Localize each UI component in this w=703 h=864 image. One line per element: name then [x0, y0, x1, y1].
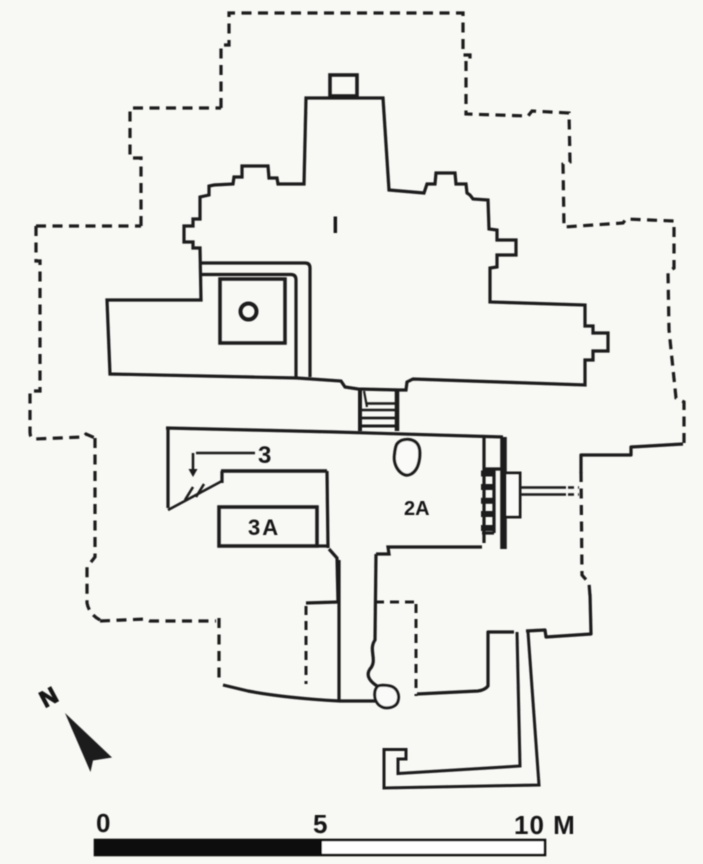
- svg-text:5: 5: [313, 809, 327, 839]
- svg-text:N: N: [35, 682, 62, 713]
- svg-text:3: 3: [258, 442, 271, 469]
- svg-text:10 M: 10 M: [514, 810, 576, 840]
- svg-text:2A: 2A: [404, 498, 430, 520]
- svg-text:I: I: [332, 212, 339, 239]
- svg-text:3A: 3A: [248, 515, 280, 540]
- svg-text:0: 0: [96, 808, 110, 838]
